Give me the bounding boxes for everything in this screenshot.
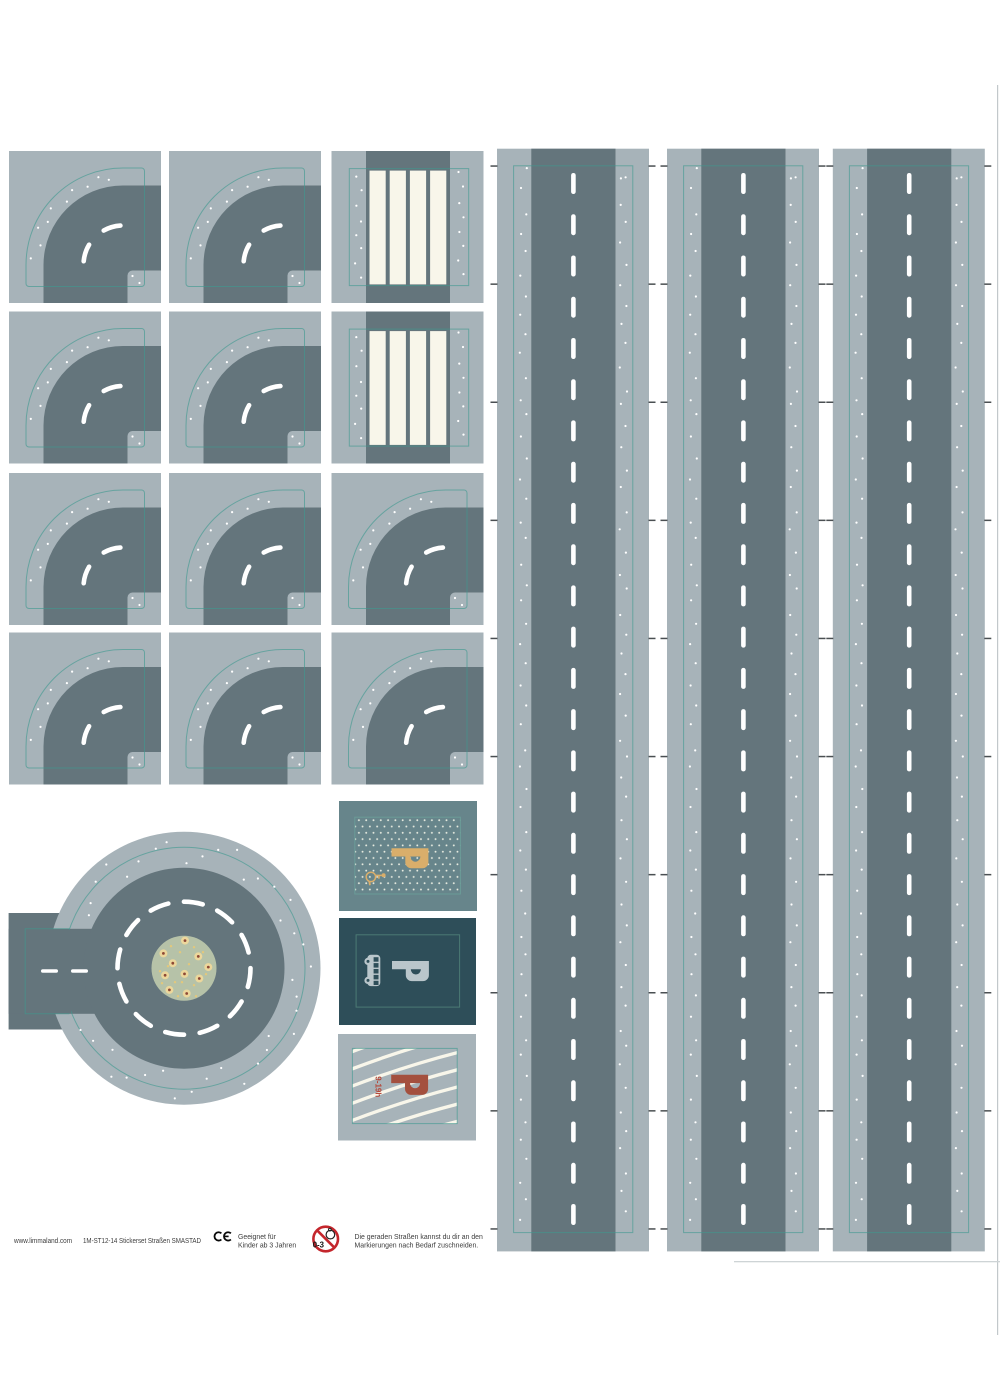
- svg-text:9-19h: 9-19h: [373, 1076, 382, 1097]
- svg-text:Die geraden Straßen kannst du: Die geraden Straßen kannst du dir an den: [355, 1234, 483, 1241]
- svg-text:Kinder ab 3 Jahren: Kinder ab 3 Jahren: [238, 1242, 296, 1249]
- svg-text:Markierungen nach Bedarf zusch: Markierungen nach Bedarf zuschneiden.: [355, 1242, 479, 1249]
- svg-text:www.limmaland.com: www.limmaland.com: [13, 1238, 72, 1245]
- svg-text:Geeignet für: Geeignet für: [238, 1234, 277, 1241]
- svg-text:1M-ST12-14 Stickerset Straßen: 1M-ST12-14 Stickerset Straßen SMASTAD: [83, 1238, 201, 1245]
- svg-text:0-3: 0-3: [313, 1241, 325, 1250]
